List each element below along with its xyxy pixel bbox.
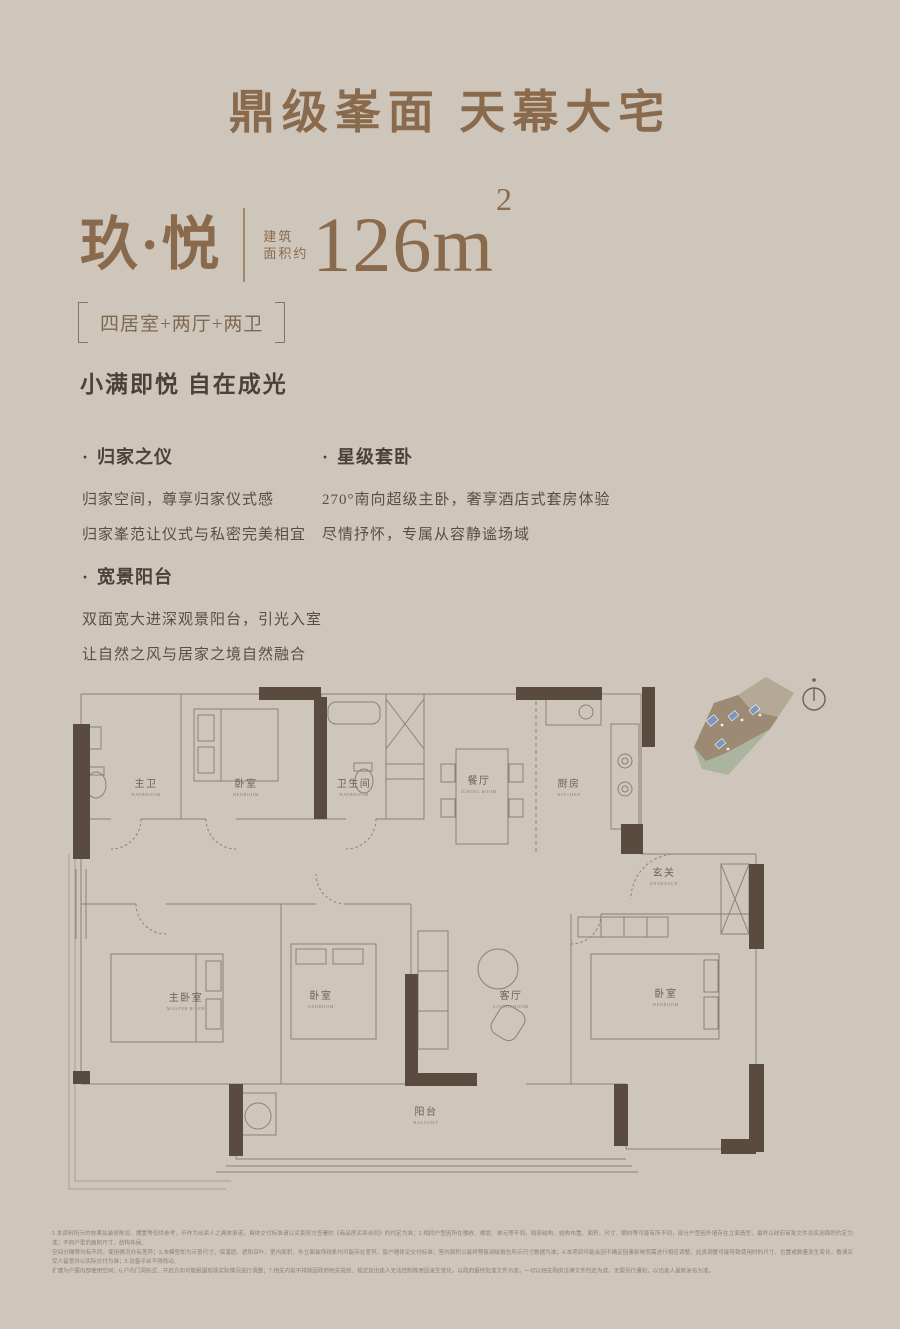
disclaimer: 1.本资料所示的效果及装修陈设、摆置等仅供参考，不作为出卖人之具体承诺，具体交付… [52,1229,853,1276]
room-label: 卧室 [655,987,678,1000]
bullet-icon: · [82,567,89,587]
area-number: 126 [312,201,432,288]
room-label: 主卧室 [169,991,204,1004]
room-label-en: BALCONY [413,1120,439,1125]
bullet-icon: · [82,447,89,467]
room-label: 阳台 [415,1105,438,1118]
room-label-en: BEDROOM [653,1002,679,1007]
room-label: 卧室 [310,989,333,1002]
product-block: 玖·悦 建筑 面积约 126m2 [80,206,511,284]
floorplan-svg: 主卫 BATHROOM 卧室 BEDROOM 卫生间 BATHROOM 餐厅 D… [66,664,856,1234]
room-label-en: BATHROOM [339,792,368,797]
page-title: 鼎级峯面 天幕大宅 [0,76,900,142]
feature-title: ·宽景阳台 [82,563,402,589]
product-name: 玖·悦 [80,216,221,274]
area-unit: m [432,201,494,288]
area-label: 建筑 面积约 [263,228,308,262]
wall-segments [73,687,764,1156]
floorplan: 主卫 BATHROOM 卧室 BEDROOM 卫生间 BATHROOM 餐厅 D… [66,664,856,1234]
disclaimer-line: 1.本资料所示的效果及装修陈设、摆置等仅供参考，不作为出卖人之具体承诺，具体交付… [52,1229,853,1248]
compass-north-icon [803,678,825,710]
room-label-en: MASTER ROOM [167,1006,205,1011]
vertical-divider [243,208,245,282]
disclaimer-line: 扩建为户属内部使用空间；6.户内门洞形式、开启方向可能根据现场实际情况进行调整；… [52,1266,853,1275]
feature-line: 270°南向超级主卧，奢享酒店式套房体验 [322,483,742,518]
disclaimer-line: 空间分隔等均有不同，使用情况亦有差异；3.本模型即为示意尺寸，保温层、遮阳百叶、… [52,1248,853,1267]
feature-title-text: 星级套卧 [337,447,413,467]
area-label-line2: 面积约 [263,245,308,262]
room-label-en: KITCHEN [557,792,580,797]
room-label-en: BATHROOM [131,792,160,797]
area-label-line1: 建筑 [263,228,308,245]
area-value: 126m2 [312,206,511,284]
room-label: 卫生间 [337,777,372,790]
room-label-en: LIVING ROOM [493,1004,529,1009]
feature-line: 尽情抒怀，专属从容静谧场域 [322,518,742,553]
room-label: 厨房 [558,777,581,790]
room-label: 玄关 [653,866,676,879]
layout-spec: 四居室+两厅+两卫 [78,302,285,343]
room-label: 餐厅 [468,774,491,787]
right-bracket [275,302,285,343]
site-plan-inset [694,677,794,775]
feature-balcony: ·宽景阳台 双面宽大进深观景阳台，引光入室 让自然之风与居家之境自然融合 [82,563,402,673]
tagline: 小满即悦 自在成光 [80,365,288,399]
room-label-en: BEDROOM [233,792,259,797]
feature-line: 双面宽大进深观景阳台，引光入室 [82,603,402,638]
feature-master-suite: ·星级套卧 270°南向超级主卧，奢享酒店式套房体验 尽情抒怀，专属从容静谧场域 [322,443,742,553]
room-label: 主卫 [135,778,158,790]
feature-title-text: 归家之仪 [97,447,173,467]
bullet-icon: · [322,447,329,467]
room-label-en: ENTRANCE [650,881,678,886]
room-label-en: BEDROOM [308,1004,334,1009]
feature-title-text: 宽景阳台 [97,567,173,587]
room-label: 客厅 [500,989,523,1002]
layout-spec-text: 四居室+两厅+两卫 [88,302,275,343]
room-label: 卧室 [235,777,258,790]
left-bracket [78,302,88,343]
feature-title: ·星级套卧 [322,443,742,469]
room-label-en: DINING ROOM [461,789,497,794]
area-superscript: 2 [496,181,513,217]
